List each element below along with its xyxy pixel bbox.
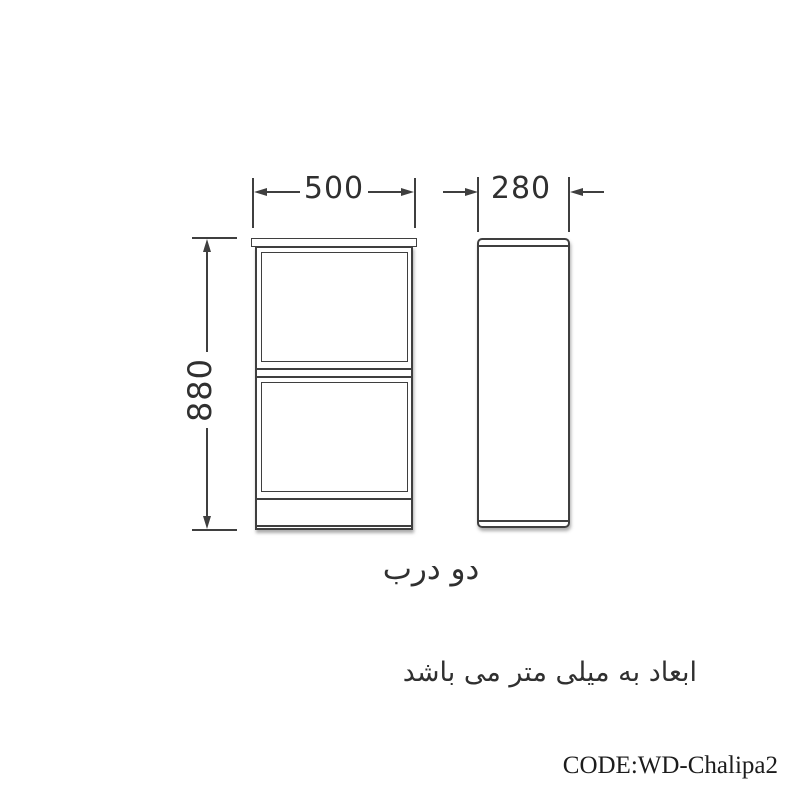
height-end-tick-top — [192, 237, 237, 239]
units-note: ابعاد به میلی متر می باشد — [367, 656, 697, 690]
technical-drawing-canvas: 500 280 880 دو درب ابعاد به میلی متر می … — [0, 0, 800, 800]
height-dim-line-upper — [206, 250, 208, 352]
height-dim-label: 880 — [183, 350, 217, 430]
height-end-tick-bottom — [192, 529, 237, 531]
height-dim-line-lower — [206, 428, 208, 518]
height-arrowhead-bottom — [203, 516, 211, 529]
product-code: CODE:WD-Chalipa2 — [478, 751, 778, 780]
drawing-caption: دو درب — [331, 551, 531, 587]
